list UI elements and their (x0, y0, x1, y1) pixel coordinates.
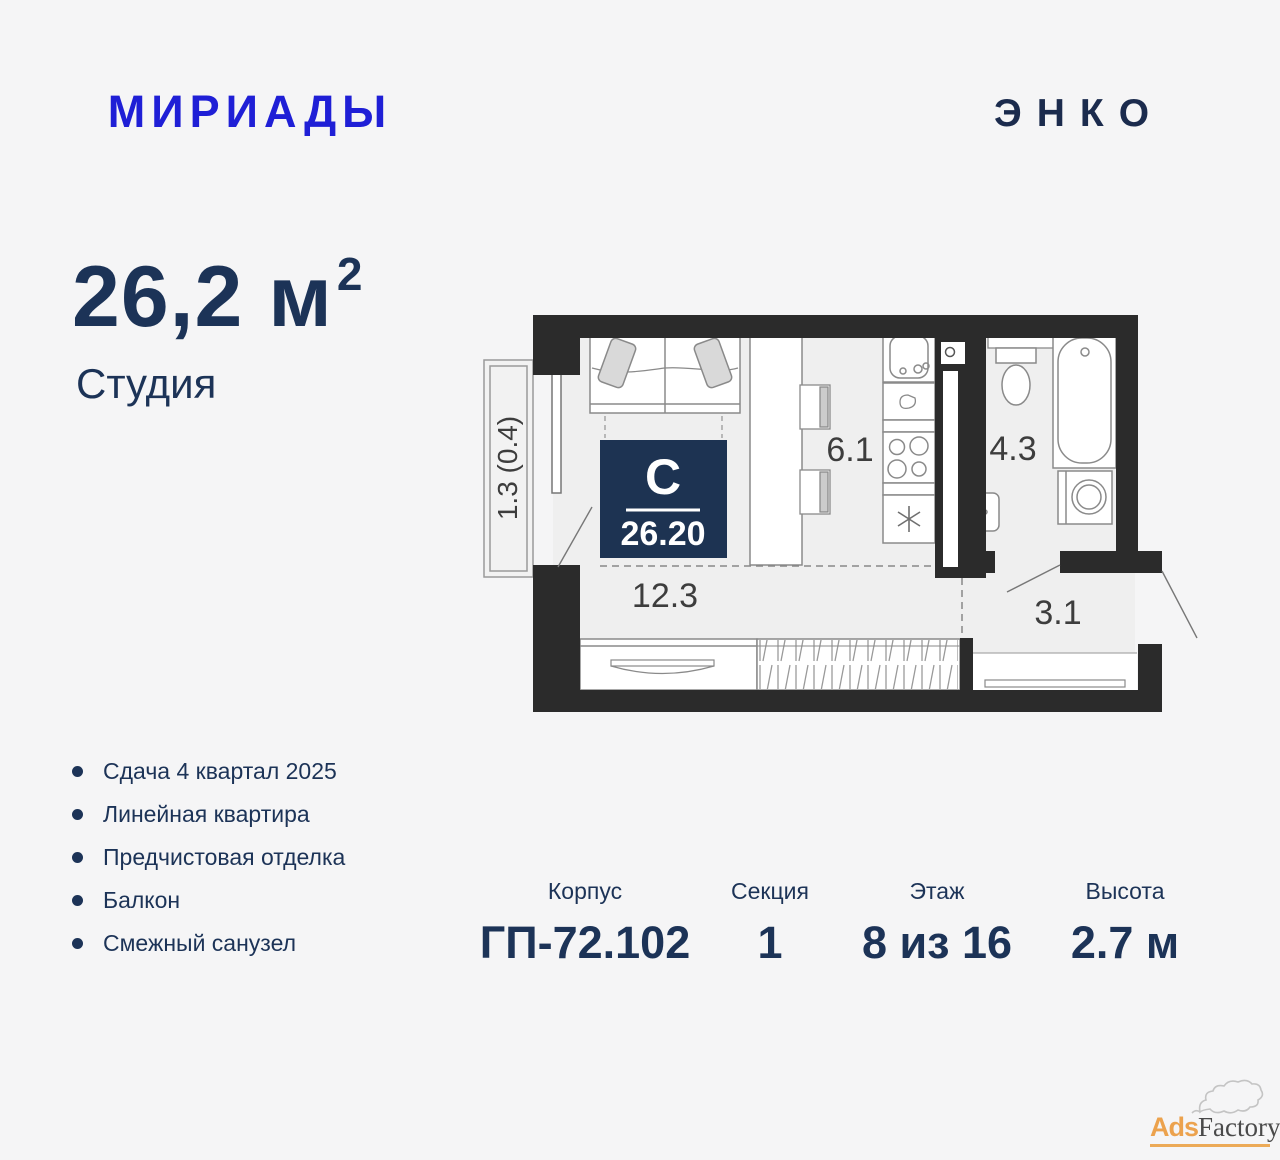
list-item: Сдача 4 квартал 2025 (72, 750, 345, 793)
washing-machine (1058, 471, 1112, 524)
room-label-kitchen: 6.1 (826, 431, 873, 469)
feature-label: Смежный санузел (103, 930, 296, 957)
spec-label: Секция (731, 878, 809, 905)
watermark-prefix: Ads (1150, 1114, 1198, 1141)
room-label-living: 12.3 (632, 577, 698, 615)
watermark-suffix: Factory (1198, 1114, 1280, 1141)
bullet-icon (72, 852, 83, 863)
area-value: 26,2 (72, 249, 243, 345)
features-list: Сдача 4 квартал 2025 Линейная квартира П… (72, 750, 345, 965)
spec-value: ГП-72.102 (480, 917, 690, 969)
apartment-type: Студия (76, 360, 216, 408)
list-item: Предчистовая отделка (72, 836, 345, 879)
entrance-door-swing (1162, 571, 1197, 638)
bed (590, 330, 740, 413)
fridge-spot (883, 483, 935, 543)
kitchen-table (750, 332, 802, 565)
feature-label: Сдача 4 квартал 2025 (103, 758, 337, 785)
feature-label: Линейная квартира (103, 801, 310, 828)
spec-value: 2.7 м (1071, 917, 1179, 969)
spec-label: Этаж (862, 878, 1012, 905)
listing-card: МИРИАДЫ ЭНКО 26,2 м2 Студия Сдача 4 квар… (0, 0, 1280, 1160)
bullet-icon (72, 895, 83, 906)
watermark: AdsFactory (1150, 1072, 1276, 1147)
feature-label: Предчистовая отделка (103, 844, 345, 871)
feature-label: Балкон (103, 887, 180, 914)
developer-logo: ЭНКО (994, 92, 1164, 136)
bathtub (1053, 333, 1116, 468)
wardrobe (757, 639, 960, 690)
area-exponent: 2 (337, 248, 364, 300)
list-item: Смежный санузел (72, 922, 345, 965)
stove (883, 432, 935, 483)
spec-section: Секция 1 (731, 878, 809, 969)
hall-closet (973, 653, 1137, 690)
bullet-icon (72, 766, 83, 777)
spec-label: Корпус (480, 878, 690, 905)
spec-height: Высота 2.7 м (1071, 878, 1179, 969)
kitchen-sink (883, 332, 935, 382)
bullet-icon (72, 809, 83, 820)
apartment-area: 26,2 м2 (72, 248, 360, 347)
spec-label: Высота (1071, 878, 1179, 905)
room-label-hall: 3.1 (1034, 594, 1081, 632)
spec-value: 1 (731, 917, 809, 969)
bullet-icon (72, 938, 83, 949)
list-item: Линейная квартира (72, 793, 345, 836)
spec-building: Корпус ГП-72.102 (480, 878, 690, 969)
spec-value: 8 из 16 (862, 917, 1012, 969)
factory-smoke-icon (1186, 1072, 1264, 1114)
room-label-balcony: 1.3 (0.4) (492, 416, 523, 520)
badge-type-letter: С (645, 449, 681, 505)
watermark-underline (1150, 1144, 1270, 1147)
room-label-bathroom: 4.3 (989, 430, 1036, 468)
balcony-window (552, 373, 561, 493)
area-unit: м (268, 249, 333, 345)
floor-plan: 12.3 6.1 4.3 3.1 1.3 (0.4) С 26.20 (480, 300, 1200, 715)
apartment-badge: С 26.20 (600, 440, 727, 558)
badge-area: 26.20 (620, 515, 705, 553)
kitchen-cabinet (883, 383, 935, 432)
list-item: Балкон (72, 879, 345, 922)
spec-floor: Этаж 8 из 16 (862, 878, 1012, 969)
dresser (580, 639, 757, 690)
project-logo: МИРИАДЫ (60, 86, 440, 138)
